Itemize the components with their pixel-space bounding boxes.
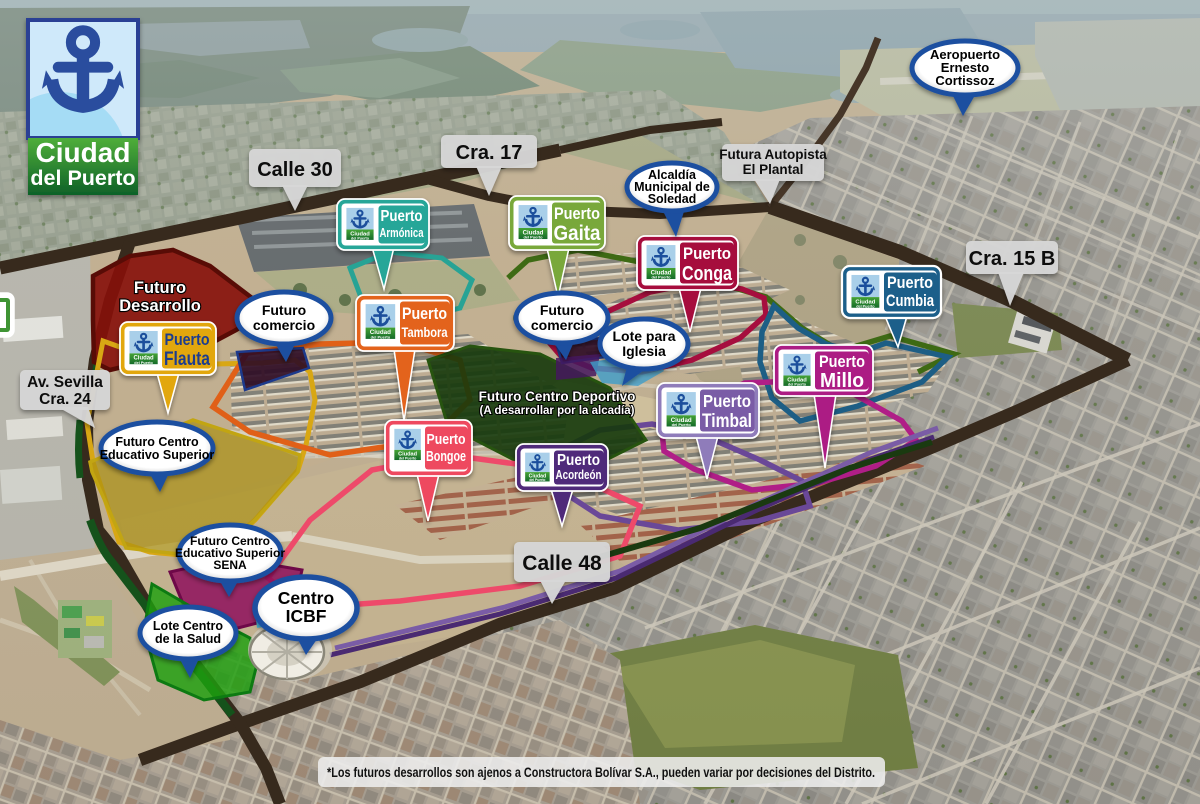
svg-text:SENA: SENA bbox=[213, 558, 247, 572]
svg-text:Futuro: Futuro bbox=[262, 302, 306, 318]
svg-text:El Plantal: El Plantal bbox=[743, 162, 804, 177]
svg-text:Cra. 15 B: Cra. 15 B bbox=[969, 248, 1056, 270]
svg-text:Bongoe: Bongoe bbox=[426, 449, 466, 465]
svg-text:Centro: Centro bbox=[278, 588, 334, 608]
svg-text:Puerto: Puerto bbox=[554, 205, 600, 223]
svg-text:Cra. 17: Cra. 17 bbox=[456, 142, 523, 164]
svg-text:Futura Autopista: Futura Autopista bbox=[719, 147, 827, 162]
svg-text:Futuro Centro: Futuro Centro bbox=[115, 435, 199, 449]
svg-text:Puerto: Puerto bbox=[887, 274, 933, 292]
svg-text:Soledad: Soledad bbox=[648, 192, 697, 206]
svg-text:Futuro: Futuro bbox=[134, 279, 186, 297]
svg-text:Millo: Millo bbox=[820, 370, 864, 392]
svg-text:Calle 30: Calle 30 bbox=[257, 159, 333, 181]
svg-text:ICBF: ICBF bbox=[286, 606, 327, 626]
svg-text:Puerto: Puerto bbox=[819, 353, 865, 371]
svg-text:de la Salud: de la Salud bbox=[155, 632, 221, 646]
svg-text:Puerto: Puerto bbox=[427, 431, 466, 448]
svg-text:Armónica: Armónica bbox=[380, 226, 425, 240]
svg-text:Puerto: Puerto bbox=[381, 208, 423, 225]
svg-text:Puerto: Puerto bbox=[402, 305, 447, 323]
svg-text:Conga: Conga bbox=[682, 262, 732, 285]
svg-text:Lote para: Lote para bbox=[612, 328, 675, 344]
svg-text:Educativo Superior: Educativo Superior bbox=[100, 448, 215, 462]
svg-text:Puerto: Puerto bbox=[703, 391, 751, 411]
svg-text:Av. Sevilla: Av. Sevilla bbox=[27, 374, 103, 391]
svg-text:del Puerto: del Puerto bbox=[30, 166, 135, 190]
svg-text:*Los futuros desarrollos son a: *Los futuros desarrollos son ajenos a Co… bbox=[327, 765, 875, 780]
svg-text:Puerto: Puerto bbox=[165, 331, 210, 349]
svg-text:Calle 48: Calle 48 bbox=[522, 552, 602, 575]
svg-text:Cortissoz: Cortissoz bbox=[935, 73, 995, 88]
svg-text:Cra. 24: Cra. 24 bbox=[39, 391, 91, 408]
svg-text:Ciudad: Ciudad bbox=[36, 137, 131, 168]
svg-text:Lote Centro: Lote Centro bbox=[153, 619, 224, 633]
svg-text:Gaita: Gaita bbox=[554, 222, 601, 245]
svg-text:Futuro: Futuro bbox=[540, 302, 584, 318]
svg-text:Cumbia: Cumbia bbox=[886, 291, 934, 310]
svg-text:Desarrollo: Desarrollo bbox=[119, 297, 201, 315]
svg-text:Futuro Centro Deportivo: Futuro Centro Deportivo bbox=[479, 389, 636, 404]
svg-text:Puerto: Puerto bbox=[683, 244, 731, 263]
svg-text:comercio: comercio bbox=[531, 317, 593, 333]
svg-text:comercio: comercio bbox=[253, 317, 315, 333]
svg-text:Acordeón: Acordeón bbox=[556, 467, 602, 482]
svg-text:(A desarrollar por la alcadía): (A desarrollar por la alcadía) bbox=[480, 405, 635, 417]
svg-text:Iglesia: Iglesia bbox=[622, 343, 666, 359]
svg-text:Timbal: Timbal bbox=[702, 411, 752, 432]
svg-text:Tambora: Tambora bbox=[402, 324, 448, 340]
svg-text:Flauta: Flauta bbox=[164, 349, 210, 370]
